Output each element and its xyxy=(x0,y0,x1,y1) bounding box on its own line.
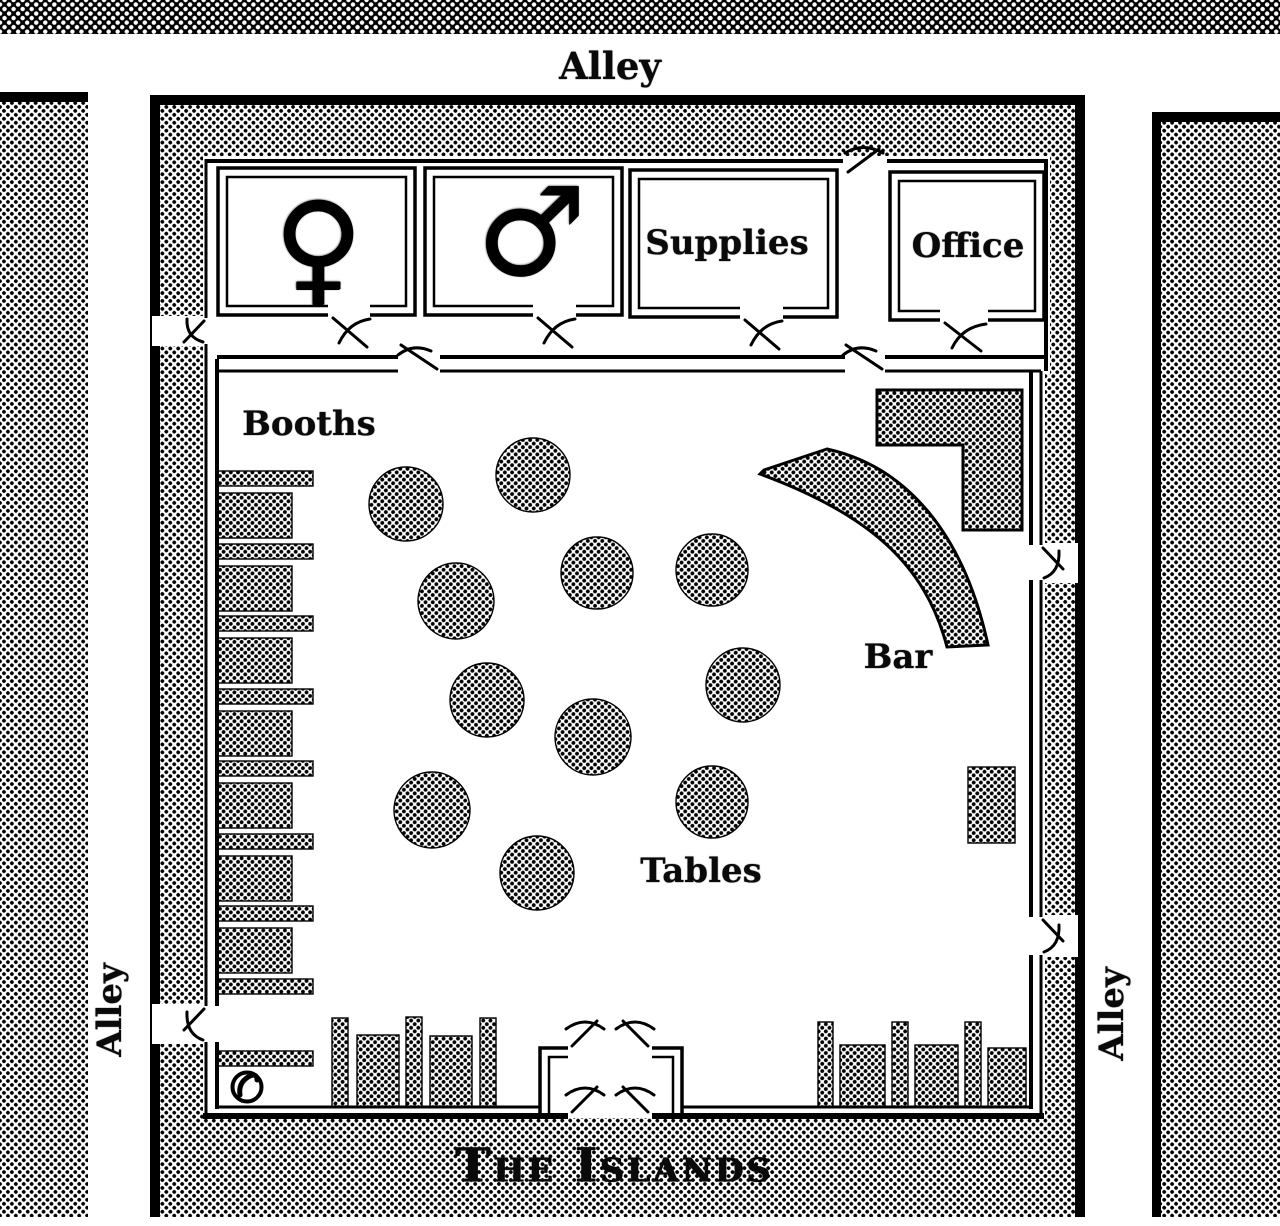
booth-table xyxy=(217,856,292,901)
office-room-label: Office xyxy=(912,226,1025,266)
booth-bench xyxy=(217,979,313,994)
table xyxy=(450,663,524,737)
booth-bench xyxy=(217,689,313,704)
floor-plan: Alley Alley Alley ♀ ♂ Supplies Office Bo… xyxy=(0,0,1280,1226)
table xyxy=(676,534,748,606)
left-neighbor-block xyxy=(0,92,88,1217)
mens-restroom-symbol: ♂ xyxy=(476,171,585,293)
booth-bench xyxy=(217,616,313,631)
counter-unit xyxy=(988,1048,1026,1107)
booth-bench xyxy=(217,471,313,486)
tables-area-label: Tables xyxy=(640,851,762,891)
table xyxy=(418,563,494,639)
counter-unit xyxy=(430,1036,472,1107)
counter-divider xyxy=(480,1018,496,1107)
right-neighbor-block xyxy=(1152,112,1280,1217)
booth-table xyxy=(217,566,292,611)
street-label-right: Alley xyxy=(1092,967,1132,1061)
table xyxy=(706,648,780,722)
booth-bench xyxy=(217,544,313,559)
table xyxy=(561,537,633,609)
booth-bench xyxy=(217,1051,313,1066)
counter-divider xyxy=(892,1022,908,1107)
booths-area-label: Booths xyxy=(242,404,376,444)
counter-unit xyxy=(840,1045,885,1107)
counter-divider xyxy=(818,1022,833,1107)
supplies-room-label: Supplies xyxy=(645,223,808,263)
counter-divider xyxy=(332,1018,348,1107)
street-label-top: Alley xyxy=(559,44,661,88)
table xyxy=(394,772,470,848)
booth-table xyxy=(217,928,292,973)
counter-unit xyxy=(357,1035,399,1107)
table xyxy=(676,766,748,838)
street-label-left: Alley xyxy=(90,963,130,1057)
service-station xyxy=(968,767,1015,843)
booth-bench xyxy=(217,761,313,776)
counter-divider xyxy=(965,1022,981,1107)
booth-bench xyxy=(217,906,313,921)
building-title: The Islands xyxy=(455,1139,773,1194)
bar-area-label: Bar xyxy=(864,637,933,677)
booth-table xyxy=(217,638,292,683)
booth-table xyxy=(217,493,292,538)
table xyxy=(369,467,443,541)
counter-divider xyxy=(406,1017,422,1107)
booth-bench xyxy=(217,834,313,849)
booth-table xyxy=(217,711,292,756)
table xyxy=(555,699,631,775)
table xyxy=(500,836,574,910)
counter-unit xyxy=(915,1045,958,1107)
floor-plan-drawing xyxy=(0,0,1280,1226)
table xyxy=(496,438,570,512)
top-street-band xyxy=(0,0,1280,34)
booth-table xyxy=(217,783,292,828)
womens-restroom-symbol: ♀ xyxy=(273,186,362,308)
